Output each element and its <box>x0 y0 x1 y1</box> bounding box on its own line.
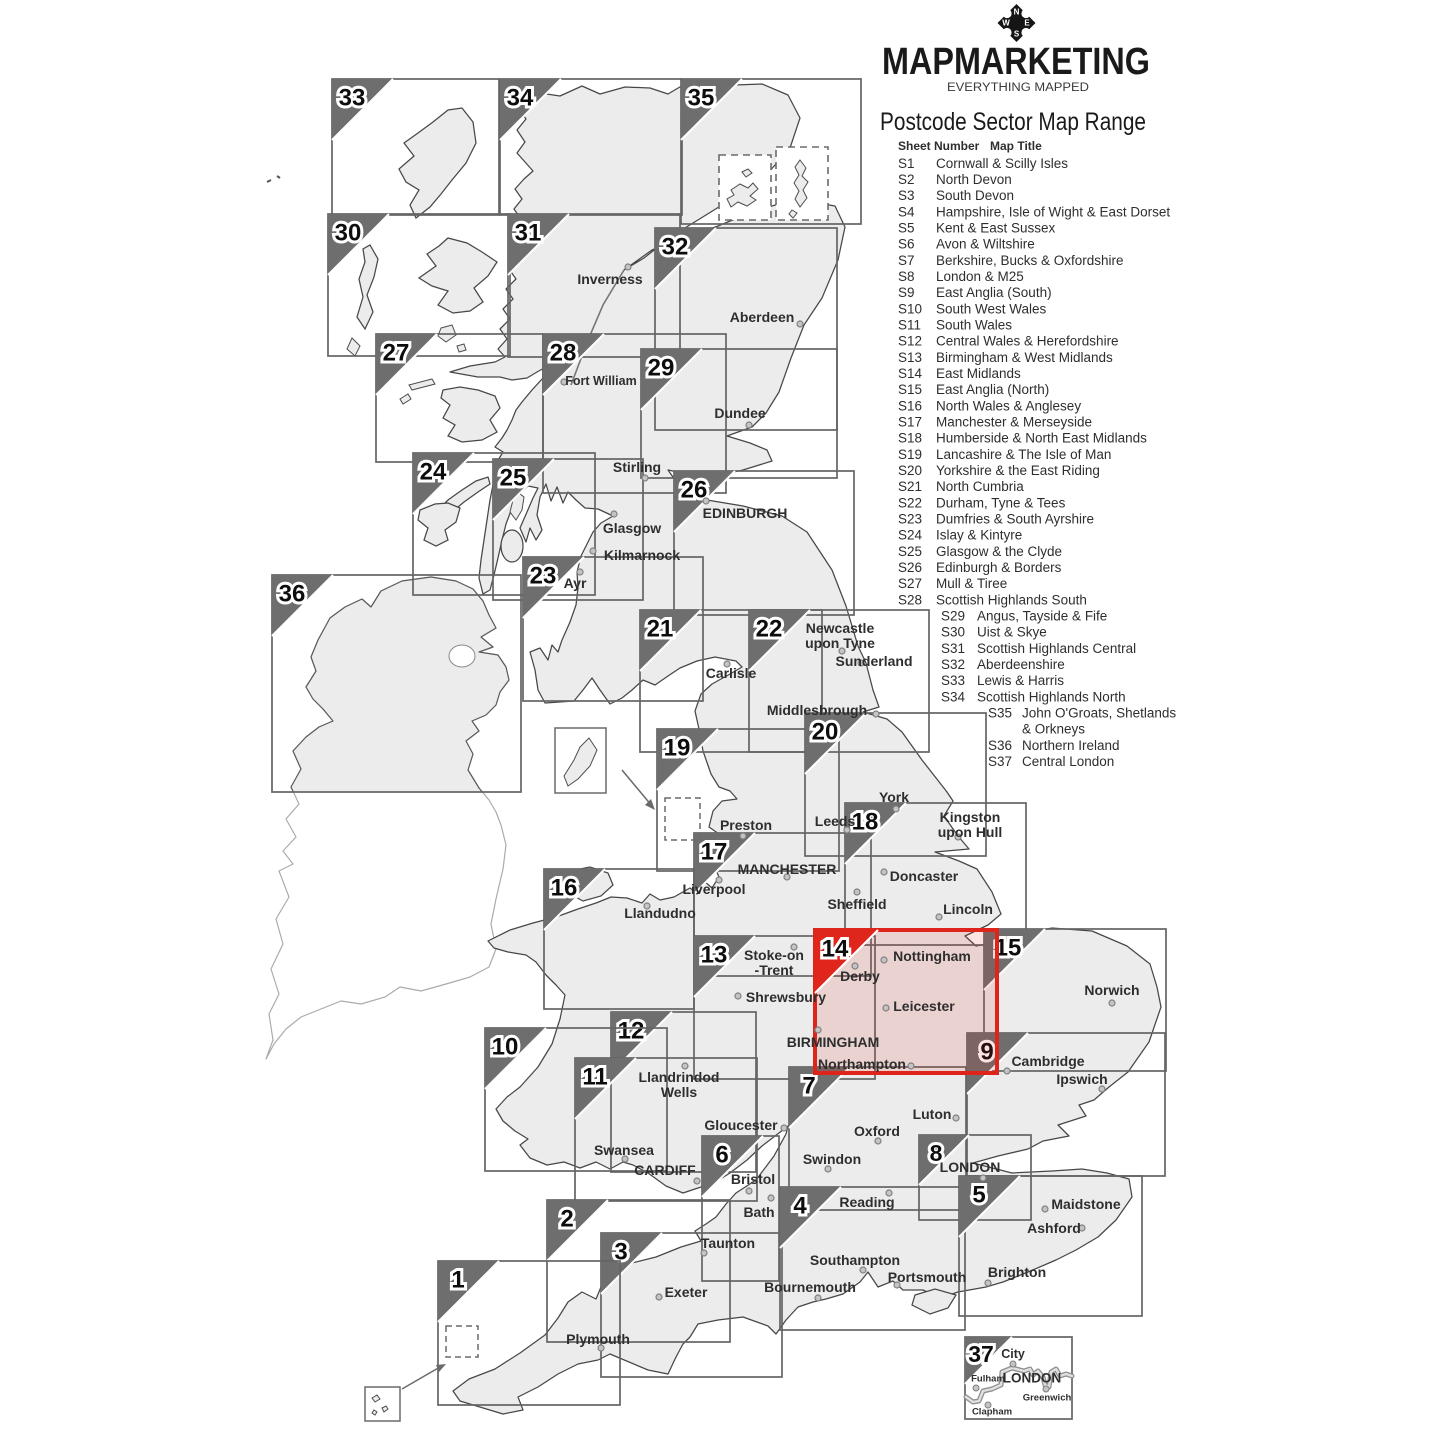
svg-text:31: 31 <box>515 220 542 247</box>
svg-text:Ayr: Ayr <box>564 575 587 591</box>
svg-text:28: 28 <box>550 340 577 367</box>
svg-text:Humberside & North East Midlan: Humberside & North East Midlands <box>936 431 1147 446</box>
svg-text:S28: S28 <box>898 592 922 607</box>
svg-text:Kingston: Kingston <box>940 809 1001 825</box>
svg-text:Edinburgh & Borders: Edinburgh & Borders <box>936 560 1062 575</box>
svg-text:11: 11 <box>582 1064 607 1091</box>
svg-text:4: 4 <box>793 1193 807 1220</box>
svg-text:Clapham: Clapham <box>972 1407 1012 1418</box>
svg-text:Postcode Sector Map Range: Postcode Sector Map Range <box>880 108 1146 136</box>
svg-text:City: City <box>1001 1347 1025 1361</box>
svg-text:Oxford: Oxford <box>854 1123 900 1139</box>
svg-text:S4: S4 <box>898 204 915 219</box>
svg-text:South Devon: South Devon <box>936 188 1014 203</box>
svg-text:S: S <box>1014 30 1020 39</box>
svg-text:Kilmarnock: Kilmarnock <box>604 547 680 563</box>
svg-text:6: 6 <box>715 1142 728 1169</box>
svg-text:S34: S34 <box>941 689 966 704</box>
svg-text:York: York <box>879 789 909 805</box>
svg-text:S15: S15 <box>898 382 922 397</box>
svg-text:Shrewsbury: Shrewsbury <box>746 989 826 1005</box>
svg-text:Exeter: Exeter <box>665 1284 708 1300</box>
svg-text:Leicester: Leicester <box>893 998 955 1014</box>
svg-text:10: 10 <box>492 1034 519 1061</box>
svg-text:East Anglia (North): East Anglia (North) <box>936 382 1049 397</box>
svg-text:Ashford: Ashford <box>1027 1220 1081 1236</box>
svg-text:Aberdeen: Aberdeen <box>730 309 795 325</box>
svg-text:14: 14 <box>822 936 849 963</box>
svg-text:Map Title: Map Title <box>990 139 1042 153</box>
svg-text:Preston: Preston <box>720 817 772 833</box>
svg-text:MANCHESTER: MANCHESTER <box>738 861 837 877</box>
svg-text:& Orkneys: & Orkneys <box>1022 722 1085 737</box>
svg-text:S14: S14 <box>898 366 923 381</box>
svg-text:Scottish Highlands Central: Scottish Highlands Central <box>977 641 1136 656</box>
svg-text:LONDON: LONDON <box>1003 1371 1062 1386</box>
svg-text:Scottish Highlands North: Scottish Highlands North <box>977 689 1126 704</box>
svg-text:S13: S13 <box>898 350 922 365</box>
svg-text:Sheet Number: Sheet Number <box>898 139 980 153</box>
svg-text:S3: S3 <box>898 188 915 203</box>
svg-text:S23: S23 <box>898 512 922 527</box>
svg-text:S36: S36 <box>988 738 1012 753</box>
svg-text:S33: S33 <box>941 673 965 688</box>
svg-text:CARDIFF: CARDIFF <box>634 1162 696 1178</box>
svg-text:16: 16 <box>551 875 578 902</box>
svg-text:London & M25: London & M25 <box>936 269 1024 284</box>
svg-text:Mull & Tiree: Mull & Tiree <box>936 576 1007 591</box>
svg-text:S7: S7 <box>898 253 915 268</box>
svg-text:25: 25 <box>500 465 527 492</box>
svg-text:Northern Ireland: Northern Ireland <box>1022 738 1120 753</box>
svg-text:S37: S37 <box>988 754 1012 769</box>
svg-text:S25: S25 <box>898 544 922 559</box>
svg-text:20: 20 <box>812 719 839 746</box>
svg-text:S24: S24 <box>898 528 923 543</box>
svg-text:Kent & East Sussex: Kent & East Sussex <box>936 221 1056 236</box>
svg-text:Ipswich: Ipswich <box>1056 1071 1107 1087</box>
svg-text:Gloucester: Gloucester <box>704 1117 778 1133</box>
svg-text:19: 19 <box>664 735 691 762</box>
svg-text:Norwich: Norwich <box>1084 982 1139 998</box>
svg-text:Manchester & Merseyside: Manchester & Merseyside <box>936 415 1092 430</box>
svg-text:S27: S27 <box>898 576 922 591</box>
svg-text:Inverness: Inverness <box>577 271 643 287</box>
svg-text:S31: S31 <box>941 641 965 656</box>
svg-text:S21: S21 <box>898 479 922 494</box>
svg-text:Sheffield: Sheffield <box>827 896 886 912</box>
svg-text:Stoke-on: Stoke-on <box>744 947 804 963</box>
svg-text:Llandrindod: Llandrindod <box>639 1069 720 1085</box>
svg-text:Llandudno: Llandudno <box>624 905 696 921</box>
svg-text:Bristol: Bristol <box>731 1171 775 1187</box>
svg-text:S22: S22 <box>898 495 922 510</box>
svg-text:S1: S1 <box>898 156 915 171</box>
svg-text:Liverpool: Liverpool <box>682 881 745 897</box>
svg-text:Lewis & Harris: Lewis & Harris <box>977 673 1064 688</box>
svg-text:upon Hull: upon Hull <box>938 824 1003 840</box>
svg-text:S16: S16 <box>898 398 922 413</box>
svg-text:30: 30 <box>335 220 362 247</box>
svg-text:Swansea: Swansea <box>594 1142 654 1158</box>
svg-text:North Devon: North Devon <box>936 172 1012 187</box>
svg-text:33: 33 <box>339 85 366 112</box>
svg-text:Portsmouth: Portsmouth <box>888 1269 967 1285</box>
svg-text:BIRMINGHAM: BIRMINGHAM <box>787 1034 880 1050</box>
svg-text:Lancashire & The Isle of Man: Lancashire & The Isle of Man <box>936 447 1111 462</box>
svg-text:Southampton: Southampton <box>810 1252 900 1268</box>
svg-text:North Cumbria: North Cumbria <box>936 479 1024 494</box>
svg-text:EVERYTHING MAPPED: EVERYTHING MAPPED <box>947 82 1089 94</box>
svg-text:7: 7 <box>802 1073 815 1100</box>
svg-text:Berkshire, Bucks & Oxfordshire: Berkshire, Bucks & Oxfordshire <box>936 253 1124 268</box>
svg-text:Brighton: Brighton <box>988 1264 1046 1280</box>
svg-text:Sunderland: Sunderland <box>835 653 912 669</box>
svg-text:Yorkshire & the East Riding: Yorkshire & the East Riding <box>936 463 1100 478</box>
svg-text:S17: S17 <box>898 415 922 430</box>
svg-text:Bath: Bath <box>743 1204 774 1220</box>
svg-text:23: 23 <box>530 563 557 590</box>
svg-text:S18: S18 <box>898 431 922 446</box>
svg-text:Glasgow & the Clyde: Glasgow & the Clyde <box>936 544 1062 559</box>
svg-text:Leeds: Leeds <box>815 813 856 829</box>
svg-text:21: 21 <box>647 616 674 643</box>
svg-text:1: 1 <box>451 1267 464 1294</box>
svg-text:5: 5 <box>972 1182 985 1209</box>
svg-text:S26: S26 <box>898 560 922 575</box>
svg-text:Greenwich: Greenwich <box>1023 1393 1072 1404</box>
svg-text:Angus, Tayside & Fife: Angus, Tayside & Fife <box>977 609 1107 624</box>
svg-text:36: 36 <box>279 581 306 608</box>
svg-text:MAPMARKETING: MAPMARKETING <box>882 41 1150 83</box>
svg-text:34: 34 <box>507 85 534 112</box>
svg-text:27: 27 <box>383 340 410 367</box>
svg-text:LONDON: LONDON <box>940 1159 1001 1175</box>
svg-text:S19: S19 <box>898 447 922 462</box>
svg-text:24: 24 <box>420 459 447 486</box>
svg-text:Nottingham: Nottingham <box>893 948 971 964</box>
svg-text:Reading: Reading <box>839 1194 894 1210</box>
svg-text:S5: S5 <box>898 221 915 236</box>
svg-text:Islay & Kintyre: Islay & Kintyre <box>936 528 1022 543</box>
svg-text:18: 18 <box>852 809 879 836</box>
svg-text:Fort William: Fort William <box>565 374 636 388</box>
svg-text:Stirling: Stirling <box>613 459 661 475</box>
svg-text:Glasgow: Glasgow <box>603 520 661 536</box>
svg-text:Swindon: Swindon <box>803 1151 861 1167</box>
svg-text:12: 12 <box>618 1018 645 1045</box>
svg-text:Durham, Tyne & Tees: Durham, Tyne & Tees <box>936 495 1066 510</box>
svg-text:S30: S30 <box>941 625 965 640</box>
svg-text:Fulham: Fulham <box>971 1374 1005 1385</box>
svg-text:Luton: Luton <box>913 1106 952 1122</box>
svg-text:S35: S35 <box>988 706 1012 721</box>
svg-text:Bournemouth: Bournemouth <box>764 1279 856 1295</box>
svg-text:Wells: Wells <box>661 1084 698 1100</box>
svg-text:S8: S8 <box>898 269 915 284</box>
svg-text:S20: S20 <box>898 463 922 478</box>
svg-text:Maidstone: Maidstone <box>1051 1196 1120 1212</box>
svg-text:Doncaster: Doncaster <box>890 868 959 884</box>
svg-text:Hampshire, Isle of Wight & Eas: Hampshire, Isle of Wight & East Dorset <box>936 204 1170 219</box>
svg-text:Newcastle: Newcastle <box>806 620 875 636</box>
svg-text:-Trent: -Trent <box>755 962 794 978</box>
svg-text:EDINBURGH: EDINBURGH <box>703 505 788 521</box>
svg-text:Cornwall & Scilly Isles: Cornwall & Scilly Isles <box>936 156 1068 171</box>
svg-text:N: N <box>1014 8 1020 17</box>
svg-text:S11: S11 <box>898 318 921 333</box>
svg-text:Plymouth: Plymouth <box>566 1331 630 1347</box>
svg-text:Central London: Central London <box>1022 754 1114 769</box>
svg-text:S29: S29 <box>941 609 965 624</box>
svg-text:Scottish Highlands South: Scottish Highlands South <box>936 592 1087 607</box>
svg-text:Middlesbrough: Middlesbrough <box>767 702 867 718</box>
svg-text:17: 17 <box>701 839 728 866</box>
svg-text:S10: S10 <box>898 301 922 316</box>
svg-text:Dumfries & South Ayrshire: Dumfries & South Ayrshire <box>936 512 1094 527</box>
svg-text:East Midlands: East Midlands <box>936 366 1021 381</box>
svg-text:S32: S32 <box>941 657 965 672</box>
svg-text:Aberdeenshire: Aberdeenshire <box>977 657 1065 672</box>
svg-text:S9: S9 <box>898 285 915 300</box>
svg-text:South West Wales: South West Wales <box>936 301 1047 316</box>
svg-text:29: 29 <box>648 355 675 382</box>
svg-text:Northampton: Northampton <box>818 1056 906 1072</box>
svg-text:Birmingham & West Midlands: Birmingham & West Midlands <box>936 350 1113 365</box>
svg-text:37: 37 <box>968 1341 994 1367</box>
svg-text:South Wales: South Wales <box>936 318 1012 333</box>
svg-text:S6: S6 <box>898 237 915 252</box>
svg-text:Cambridge: Cambridge <box>1011 1053 1084 1069</box>
svg-text:S2: S2 <box>898 172 915 187</box>
svg-text:Derby: Derby <box>840 968 880 984</box>
svg-text:22: 22 <box>756 616 783 643</box>
svg-text:North Wales & Anglesey: North Wales & Anglesey <box>936 398 1081 413</box>
svg-text:Lincoln: Lincoln <box>943 901 993 917</box>
svg-text:Taunton: Taunton <box>701 1235 755 1251</box>
svg-text:35: 35 <box>688 85 715 112</box>
svg-text:E: E <box>1024 19 1030 28</box>
svg-text:13: 13 <box>701 942 728 969</box>
svg-text:John O'Groats, Shetlands: John O'Groats, Shetlands <box>1022 706 1176 721</box>
svg-text:Central Wales & Herefordshire: Central Wales & Herefordshire <box>936 334 1119 349</box>
svg-text:East Anglia (South): East Anglia (South) <box>936 285 1052 300</box>
svg-text:Avon & Wiltshire: Avon & Wiltshire <box>936 237 1035 252</box>
svg-text:2: 2 <box>560 1206 573 1233</box>
svg-text:W: W <box>1002 19 1010 28</box>
svg-text:Carlisle: Carlisle <box>706 665 757 681</box>
svg-text:upon Tyne: upon Tyne <box>805 635 875 651</box>
svg-text:S12: S12 <box>898 334 922 349</box>
svg-text:Dundee: Dundee <box>714 405 766 421</box>
svg-text:32: 32 <box>662 234 689 261</box>
svg-text:Uist & Skye: Uist & Skye <box>977 625 1047 640</box>
